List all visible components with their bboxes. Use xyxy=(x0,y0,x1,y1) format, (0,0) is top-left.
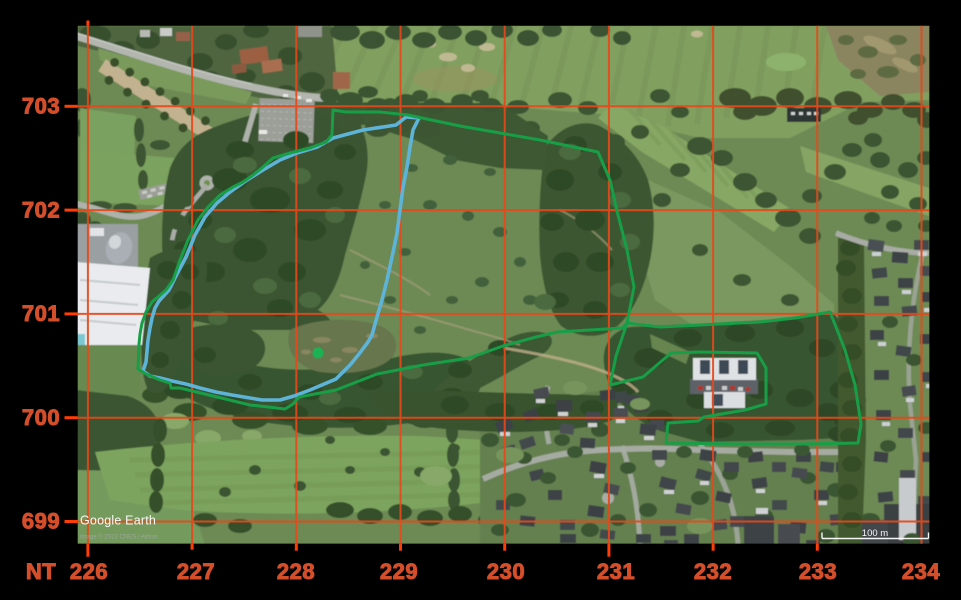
svg-text:Google Earth: Google Earth xyxy=(80,514,156,528)
svg-text:234: 234 xyxy=(902,559,940,584)
svg-text:228: 228 xyxy=(277,559,315,584)
svg-text:230: 230 xyxy=(487,559,525,584)
svg-text:231: 231 xyxy=(597,559,635,584)
svg-text:229: 229 xyxy=(380,559,418,584)
svg-text:232: 232 xyxy=(694,559,732,584)
svg-text:233: 233 xyxy=(799,559,837,584)
svg-text:227: 227 xyxy=(177,559,215,584)
svg-text:701: 701 xyxy=(22,301,60,326)
svg-text:700: 700 xyxy=(22,405,60,430)
svg-text:Image © 2023 CNES / Airbus: Image © 2023 CNES / Airbus xyxy=(80,534,158,541)
svg-text:703: 703 xyxy=(22,94,60,119)
svg-text:699: 699 xyxy=(22,509,60,534)
svg-text:NT: NT xyxy=(26,559,56,584)
svg-text:100 m: 100 m xyxy=(862,528,888,539)
svg-text:702: 702 xyxy=(22,197,60,222)
svg-text:226: 226 xyxy=(70,559,108,584)
